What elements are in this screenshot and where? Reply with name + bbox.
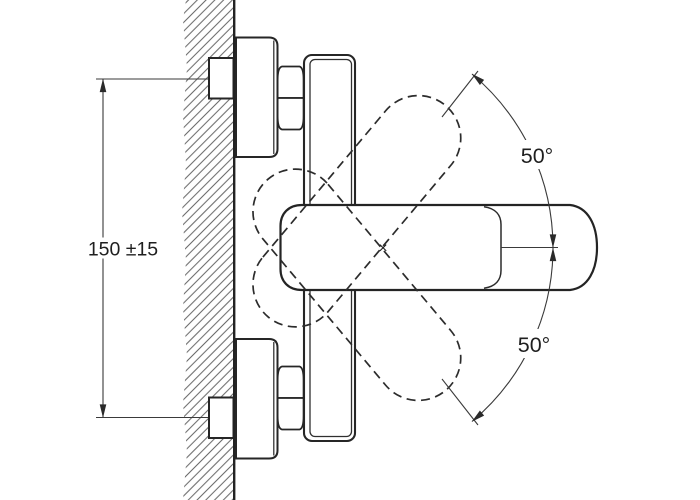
lever-handle — [281, 205, 598, 290]
lower-nut-bottom-half — [278, 398, 304, 430]
upper-nut-top-half — [278, 67, 304, 99]
angle-extension-top — [442, 71, 478, 117]
angle-label-bottom: 50° — [518, 333, 551, 357]
lower-flange — [236, 339, 278, 459]
upper-connection — [236, 38, 304, 158]
angle-label-top: 50° — [521, 144, 554, 168]
mixer-installation-drawing: × 150 ±15 50° 50° — [0, 0, 700, 500]
upper-flange — [236, 38, 278, 158]
upper-nut-bottom-half — [278, 98, 304, 130]
angle-extension-bottom — [442, 379, 478, 425]
lower-supply-pipe — [209, 398, 234, 439]
upper-supply-pipe — [209, 58, 234, 99]
lower-connection — [236, 339, 304, 459]
technical-drawing-page: × 150 ±15 50° 50° — [0, 0, 700, 500]
lower-nut-top-half — [278, 367, 304, 399]
dimension-label: 150 ±15 — [88, 239, 158, 261]
pivot-cross-mark: × — [378, 240, 387, 257]
